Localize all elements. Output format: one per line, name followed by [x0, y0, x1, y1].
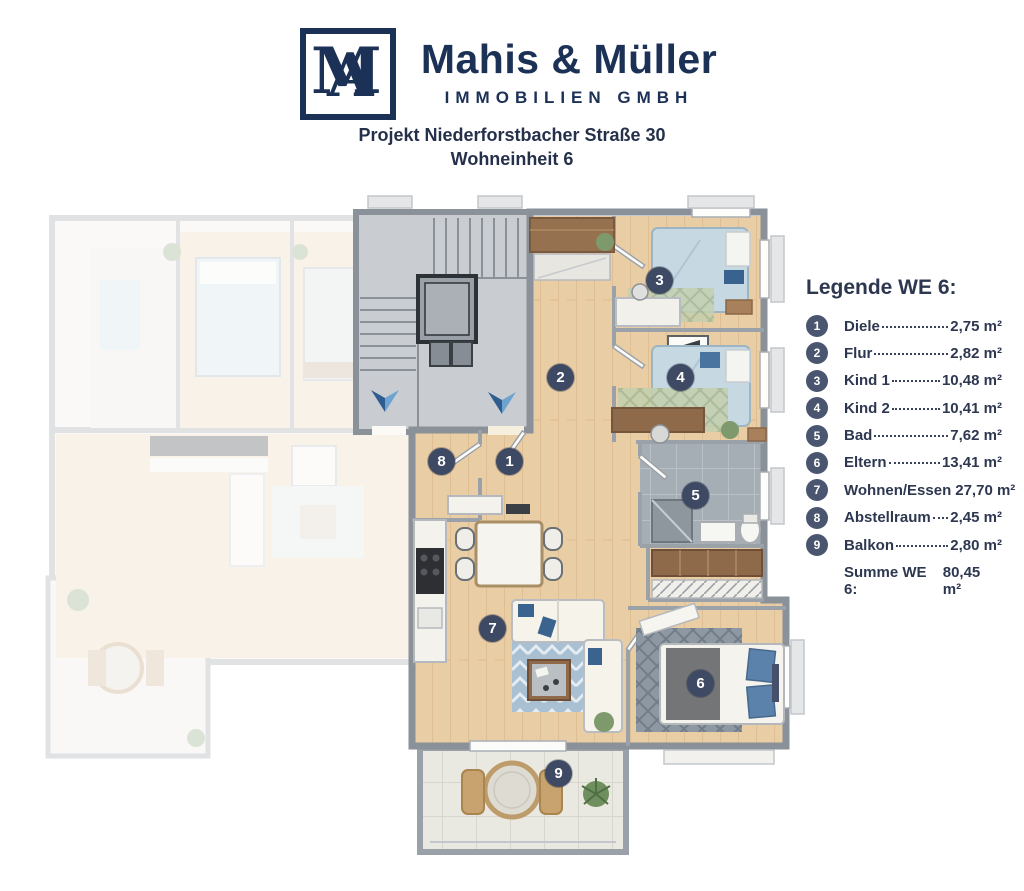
legend-label: Bad: [844, 427, 872, 444]
flur-furniture: [530, 218, 614, 280]
legend-row-balkon: 9 Balkon2,80 m²: [806, 534, 1002, 556]
dotted-leader: [874, 435, 948, 437]
legend-summary-label: Summe WE 6:: [844, 564, 943, 598]
legend-label: Kind 2: [844, 400, 890, 417]
dotted-leader: [874, 353, 948, 355]
dotted-leader: [882, 326, 948, 328]
brand-subtitle: IMMOBILIEN GMBH: [408, 88, 730, 108]
legend-label: Abstellraum: [844, 509, 931, 526]
brand-name: Mahis & Müller: [408, 36, 730, 83]
legend-value: 2,45 m²: [950, 509, 1002, 526]
legend-summary: Summe WE 6: 80,45 m²: [806, 564, 1002, 598]
legend-marker-6: 6: [806, 452, 828, 474]
legend-value: 13,41 m²: [942, 454, 1002, 471]
plan-marker-6: 6: [687, 670, 714, 697]
dotted-leader: [892, 380, 940, 382]
dotted-leader: [896, 545, 948, 547]
stairwell: [356, 212, 530, 432]
legend-label: Flur: [844, 345, 872, 362]
legend-value: 2,82 m²: [950, 345, 1002, 362]
plan-marker-9: 9: [545, 760, 572, 787]
legend-marker-2: 2: [806, 342, 828, 364]
legend-marker-9: 9: [806, 534, 828, 556]
floorplan-flyer-page: { "header": { "logo": { "letter_m": "M",…: [0, 0, 1024, 891]
legend-row-kind1: 3 Kind 110,48 m²: [806, 370, 1002, 392]
legend-marker-3: 3: [806, 370, 828, 392]
company-logo: M A: [300, 28, 396, 120]
plan-marker-4: 4: [667, 364, 694, 391]
legend-row-kind2: 4 Kind 210,41 m²: [806, 397, 1002, 419]
legend-summary-value: 80,45 m²: [943, 564, 1002, 598]
legend-label: Balkon: [844, 537, 894, 554]
legend-marker-4: 4: [806, 397, 828, 419]
legend-label: Wohnen/Essen: [844, 482, 951, 499]
brand-block: Mahis & Müller IMMOBILIEN GMBH: [408, 36, 730, 108]
balcony-table: [485, 763, 539, 817]
legend-value: 2,80 m²: [950, 537, 1002, 554]
legend-marker-5: 5: [806, 425, 828, 447]
legend-value: 27,70 m²: [955, 482, 1015, 499]
plan-marker-1: 1: [496, 448, 523, 475]
legend-row-bad: 5 Bad7,62 m²: [806, 425, 1002, 447]
dotted-leader: [889, 462, 940, 464]
legend-value: 10,41 m²: [942, 400, 1002, 417]
legend-row-eltern: 6 Eltern13,41 m²: [806, 452, 1002, 474]
plan-marker-5: 5: [682, 482, 709, 509]
balcony-chair: [462, 770, 484, 814]
legend-row-wohnen: 7 Wohnen/Essen27,70 m²: [806, 479, 1002, 501]
legend-marker-1: 1: [806, 315, 828, 337]
dotted-leader: [892, 408, 940, 410]
logo-monogram-a: A: [327, 46, 374, 106]
legend-row-diele: 1 Diele2,75 m²: [806, 315, 1002, 337]
legend-row-abstellraum: 8 Abstellraum2,45 m²: [806, 507, 1002, 529]
project-line-1: Projekt Niederforstbacher Straße 30: [0, 123, 1024, 147]
legend-row-flur: 2 Flur2,82 m²: [806, 342, 1002, 364]
legend-marker-8: 8: [806, 507, 828, 529]
legend-value: 7,62 m²: [950, 427, 1002, 444]
legend-title: Legende WE 6:: [806, 276, 1002, 300]
dotted-leader: [933, 517, 949, 519]
plan-marker-2: 2: [547, 364, 574, 391]
project-title: Projekt Niederforstbacher Straße 30 Wohn…: [0, 123, 1024, 171]
legend-marker-7: 7: [806, 479, 828, 501]
legend-label: Kind 1: [844, 372, 890, 389]
plan-marker-3: 3: [646, 267, 673, 294]
legend-panel: Legende WE 6: 1 Diele2,75 m² 2 Flur2,82 …: [806, 276, 1002, 598]
plan-marker-7: 7: [479, 615, 506, 642]
project-line-2: Wohneinheit 6: [0, 147, 1024, 171]
legend-label: Eltern: [844, 454, 887, 471]
legend-value: 10,48 m²: [942, 372, 1002, 389]
legend-value: 2,75 m²: [950, 318, 1002, 335]
balcony: [420, 748, 626, 852]
plan-marker-8: 8: [428, 448, 455, 475]
legend-label: Diele: [844, 318, 880, 335]
